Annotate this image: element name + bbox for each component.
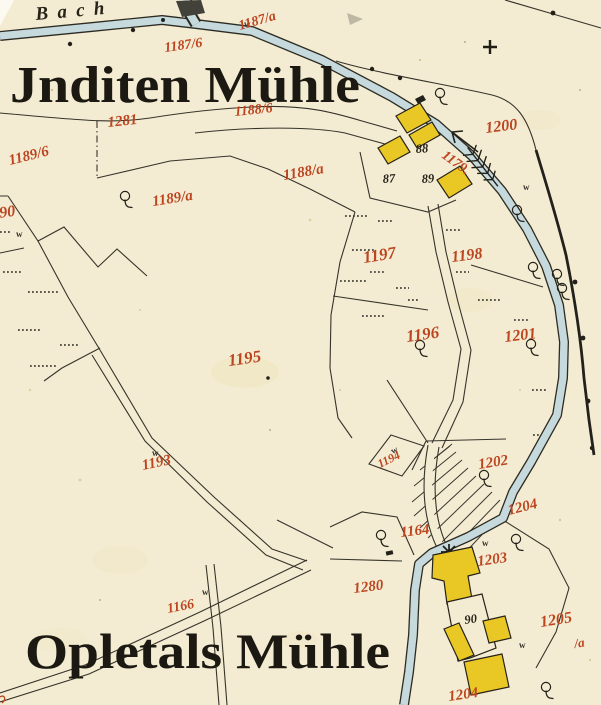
meadow-symbol: w [519,640,526,650]
meadow-symbol: w [202,587,209,597]
house-number-88: 88 [415,141,429,156]
meadow-symbol: w [16,229,23,239]
mill-name-top: Jnditen Mühle [10,57,360,114]
meadow-symbol: w [482,538,489,548]
parcel-label-1281: 1281 [107,112,139,131]
house-number-89: 89 [421,171,435,186]
house-number-87: 87 [382,171,396,186]
mill-name-bottom: Opletals Mühle [25,623,390,679]
meadow-symbol: w [523,182,530,192]
cadastral-map: w w w w w w w w 1187/a 1187/6 1188/6 128… [0,0,601,705]
